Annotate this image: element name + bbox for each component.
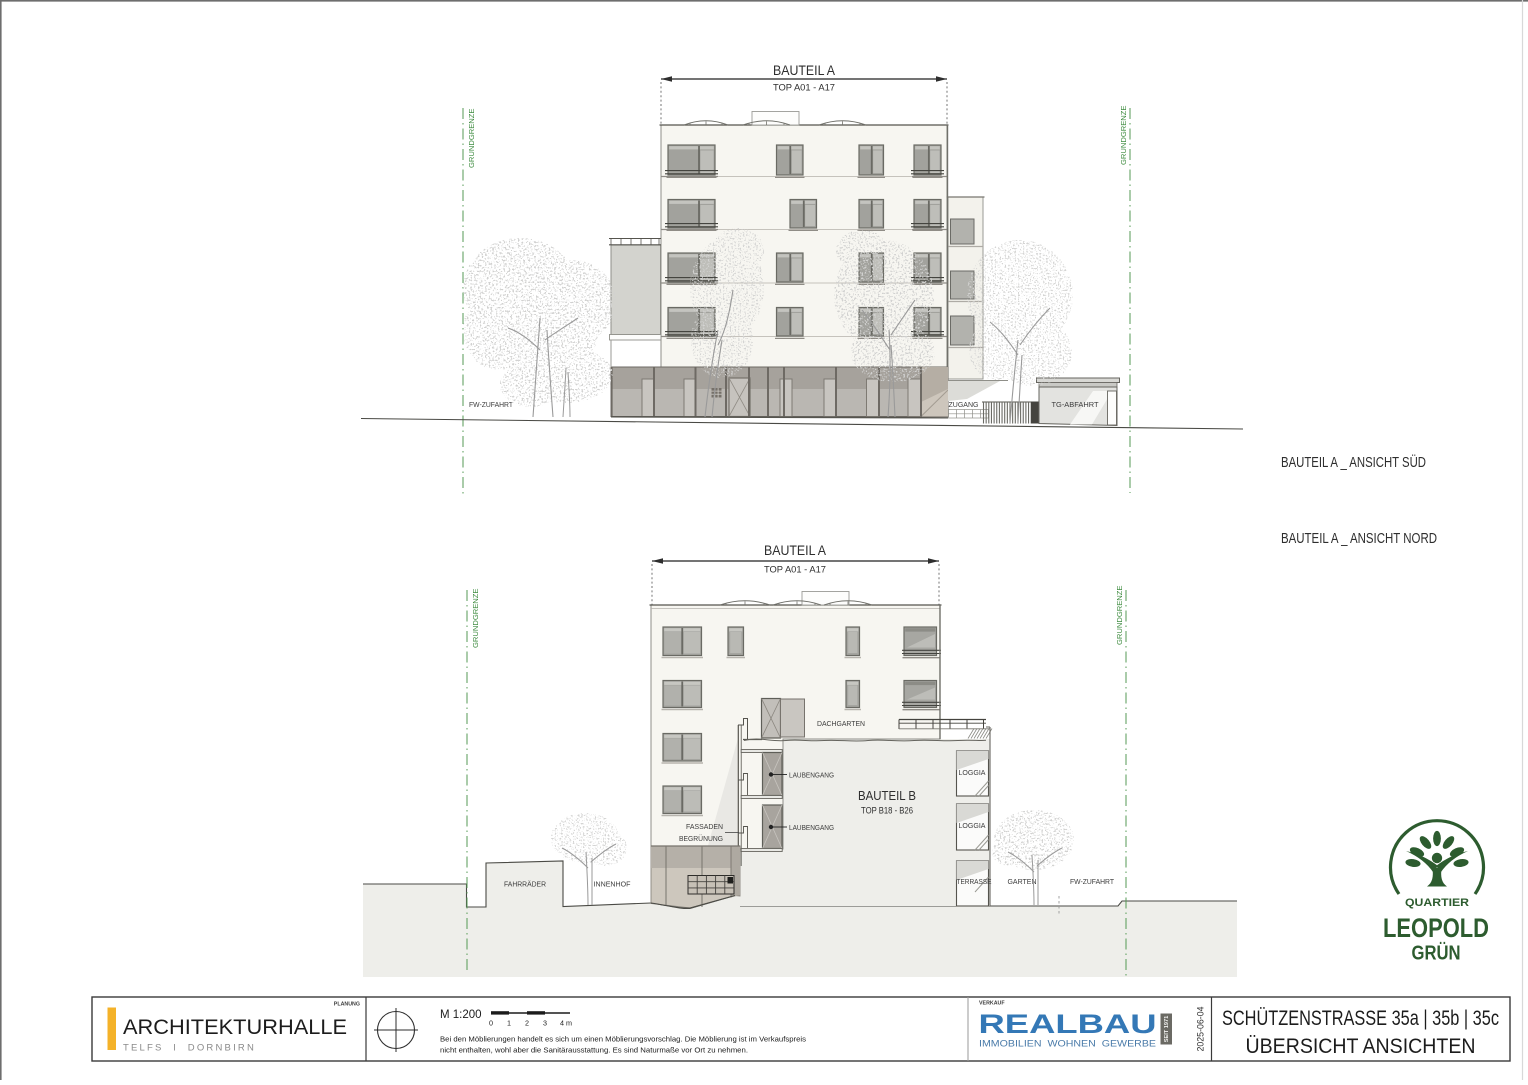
svg-text:ZUGANG: ZUGANG (949, 400, 979, 409)
svg-text:FW-ZUFAHRT: FW-ZUFAHRT (1070, 877, 1114, 886)
svg-text:GRUNDGRENZE: GRUNDGRENZE (471, 589, 480, 649)
svg-text:M 1:200: M 1:200 (440, 1009, 482, 1021)
svg-text:PLANUNG: PLANUNG (334, 1002, 360, 1008)
svg-text:TERRASSE: TERRASSE (957, 879, 992, 886)
svg-text:INNENHOF: INNENHOF (594, 880, 631, 889)
svg-text:QUARTIER: QUARTIER (1405, 897, 1469, 909)
svg-text:BAUTEIL A _ ANSICHT SÜD: BAUTEIL A _ ANSICHT SÜD (1281, 453, 1426, 471)
svg-text:SCHÜTZENSTRASSE 35a | 35b | 35: SCHÜTZENSTRASSE 35a | 35b | 35c (1222, 1007, 1499, 1030)
svg-text:GRÜN: GRÜN (1412, 942, 1461, 965)
svg-text:2025-06-04: 2025-06-04 (1196, 1006, 1206, 1051)
svg-text:1: 1 (507, 1019, 511, 1028)
svg-text:BEGRÜNUNG: BEGRÜNUNG (679, 834, 723, 843)
svg-text:BAUTEIL A _ ANSICHT NORD: BAUTEIL A _ ANSICHT NORD (1281, 531, 1437, 547)
svg-text:BAUTEIL A: BAUTEIL A (764, 543, 826, 558)
svg-text:FW-ZUFAHRT: FW-ZUFAHRT (469, 400, 513, 409)
svg-text:TOP A01 - A17: TOP A01 - A17 (764, 565, 826, 575)
svg-text:3: 3 (543, 1019, 547, 1028)
svg-text:GRUNDGRENZE: GRUNDGRENZE (1119, 106, 1128, 166)
svg-text:ÜBERSICHT ANSICHTEN: ÜBERSICHT ANSICHTEN (1246, 1035, 1476, 1058)
svg-text:FASSADEN: FASSADEN (686, 822, 723, 831)
svg-text:LOGGIA: LOGGIA (959, 768, 986, 777)
svg-text:FAHRRÄDER: FAHRRÄDER (504, 880, 546, 889)
svg-text:LAUBENGANG: LAUBENGANG (789, 771, 834, 780)
svg-text:REALBAU: REALBAU (979, 1009, 1157, 1039)
svg-text:ARCHITEKTURHALLE: ARCHITEKTURHALLE (123, 1015, 347, 1039)
svg-text:BAUTEIL B: BAUTEIL B (858, 789, 916, 803)
svg-text:GARTEN: GARTEN (1008, 877, 1037, 886)
svg-text:0: 0 (489, 1019, 493, 1028)
svg-text:TG-ABFAHRT: TG-ABFAHRT (1052, 400, 1099, 409)
svg-text:TELFS I DORNBIRN: TELFS I DORNBIRN (123, 1043, 256, 1054)
svg-text:4 m: 4 m (560, 1019, 572, 1028)
svg-text:SEIT 1971: SEIT 1971 (1164, 1016, 1170, 1042)
svg-text:IMMOBILIEN WOHNEN GEWERBE: IMMOBILIEN WOHNEN GEWERBE (979, 1039, 1156, 1049)
svg-text:GRUNDGRENZE: GRUNDGRENZE (1115, 586, 1124, 646)
svg-text:LEOPOLD: LEOPOLD (1383, 913, 1489, 943)
svg-text:Bei den Möblierungen handelt e: Bei den Möblierungen handelt es sich um … (440, 1035, 806, 1044)
svg-text:TOP B18 - B26: TOP B18 - B26 (861, 806, 913, 816)
svg-text:2: 2 (525, 1019, 529, 1028)
svg-text:VERKAUF: VERKAUF (979, 1001, 1005, 1007)
svg-text:nicht enthalten, wohl aber die: nicht enthalten, wohl aber die Sanitärau… (440, 1046, 748, 1055)
svg-text:GRUNDGRENZE: GRUNDGRENZE (467, 109, 476, 169)
svg-text:LOGGIA: LOGGIA (959, 821, 986, 830)
svg-text:TOP A01 - A17: TOP A01 - A17 (773, 83, 835, 93)
svg-text:DACHGARTEN: DACHGARTEN (817, 719, 865, 728)
svg-text:BAUTEIL A: BAUTEIL A (773, 63, 835, 78)
svg-text:LAUBENGANG: LAUBENGANG (789, 823, 834, 832)
